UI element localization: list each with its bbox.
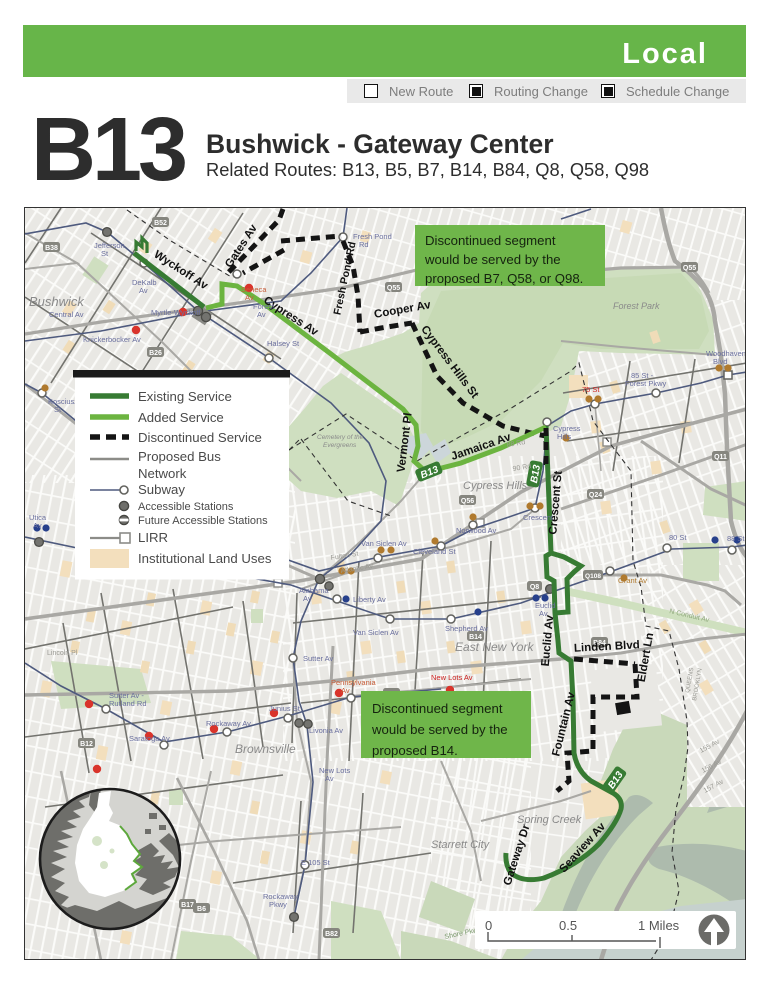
svg-text:proposed B14.: proposed B14.	[372, 743, 458, 758]
svg-text:0: 0	[485, 918, 492, 933]
svg-text:Lincoln Pl: Lincoln Pl	[47, 650, 78, 657]
svg-text:75 St: 75 St	[582, 385, 600, 394]
svg-text:Added Service: Added Service	[138, 410, 224, 425]
svg-text:Saratoga Av: Saratoga Av	[129, 734, 170, 743]
svg-text:Knickerbocker Av: Knickerbocker Av	[83, 335, 141, 344]
svg-text:Central Av: Central Av	[49, 310, 84, 319]
svg-text:St: St	[101, 249, 109, 258]
svg-text:Institutional Land Uses: Institutional Land Uses	[138, 551, 272, 566]
svg-text:Starrett City: Starrett City	[431, 839, 491, 851]
svg-text:Brownsville: Brownsville	[235, 742, 296, 756]
svg-text:Forest Pkwy: Forest Pkwy	[625, 379, 667, 388]
svg-text:would be served by the: would be served by the	[371, 722, 508, 737]
svg-text:Proposed Bus: Proposed Bus	[138, 449, 221, 464]
svg-text:Spring Creek: Spring Creek	[517, 814, 582, 826]
svg-text:Shepherd Av: Shepherd Av	[445, 624, 488, 633]
svg-text:Q55: Q55	[683, 265, 696, 272]
svg-text:Av: Av	[341, 686, 350, 695]
svg-text:Myrtle-Wyckoff: Myrtle-Wyckoff	[151, 308, 201, 317]
svg-text:Rockaway Av: Rockaway Av	[206, 719, 251, 728]
svg-text:proposed B7, Q58, or Q98.: proposed B7, Q58, or Q98.	[425, 271, 583, 286]
svg-text:Accessible Stations: Accessible Stations	[138, 501, 234, 513]
svg-text:Rd: Rd	[359, 240, 369, 249]
svg-text:Q8: Q8	[530, 584, 539, 591]
svg-text:Blvd: Blvd	[713, 357, 728, 366]
svg-text:New Lots Av: New Lots Av	[431, 673, 473, 682]
svg-text:0.5: 0.5	[559, 918, 577, 933]
svg-text:Av: Av	[139, 286, 148, 295]
svg-text:1 Miles: 1 Miles	[638, 918, 680, 933]
svg-text:B17: B17	[181, 902, 194, 909]
svg-text:B26: B26	[149, 350, 162, 357]
svg-text:Crescent: Crescent	[523, 513, 554, 522]
svg-text:Q11: Q11	[714, 454, 727, 461]
svg-text:Av: Av	[245, 293, 254, 302]
svg-text:E 105 St: E 105 St	[301, 858, 331, 867]
svg-text:Evergreens: Evergreens	[323, 442, 357, 449]
svg-text:Pkwy: Pkwy	[269, 900, 287, 909]
svg-text:Forest Park: Forest Park	[613, 301, 660, 311]
svg-text:Q108: Q108	[585, 573, 601, 580]
svg-text:Bushwick: Bushwick	[29, 294, 85, 309]
svg-text:80 St: 80 St	[669, 533, 687, 542]
svg-text:Liberty Av: Liberty Av	[353, 595, 386, 604]
svg-text:Av: Av	[257, 310, 266, 319]
svg-text:B52: B52	[154, 220, 167, 227]
svg-text:Q24: Q24	[589, 492, 602, 499]
svg-text:Q56: Q56	[461, 498, 474, 505]
svg-text:would be served by the: would be served by the	[424, 252, 561, 267]
svg-text:B38: B38	[45, 245, 58, 252]
svg-text:B6: B6	[197, 906, 206, 913]
svg-text:Discontinued Service: Discontinued Service	[138, 430, 262, 445]
svg-text:Grant Av: Grant Av	[618, 576, 647, 585]
svg-text:Cemetery of the: Cemetery of the	[317, 434, 364, 441]
svg-text:B12: B12	[80, 741, 93, 748]
svg-text:Q55: Q55	[387, 285, 400, 292]
svg-text:Pennsylvania: Pennsylvania	[331, 678, 376, 687]
svg-text:Existing Service: Existing Service	[138, 389, 232, 404]
svg-text:Subway: Subway	[138, 482, 185, 497]
svg-text:Cleveland St: Cleveland St	[413, 547, 456, 556]
svg-text:Halsey St: Halsey St	[267, 339, 300, 348]
svg-text:Norwood Av: Norwood Av	[456, 526, 497, 535]
svg-text:Av: Av	[539, 609, 548, 618]
svg-text:Av: Av	[325, 774, 334, 783]
svg-text:New Lots: New Lots	[319, 766, 351, 775]
svg-text:Hills: Hills	[557, 432, 571, 441]
svg-text:B82: B82	[325, 931, 338, 938]
svg-text:Future Accessible Stations: Future Accessible Stations	[138, 515, 268, 527]
svg-text:Jefferson: Jefferson	[94, 241, 125, 250]
svg-text:Livonia Av: Livonia Av	[309, 726, 343, 735]
svg-text:88 St: 88 St	[727, 534, 745, 543]
svg-text:Av: Av	[303, 594, 312, 603]
svg-text:East New York: East New York	[455, 640, 534, 654]
svg-text:Network: Network	[138, 466, 187, 481]
svg-text:Van Siclen Av: Van Siclen Av	[361, 539, 407, 548]
svg-text:LIRR: LIRR	[138, 530, 168, 545]
svg-text:Av: Av	[33, 521, 42, 530]
svg-text:Discontinued segment: Discontinued segment	[425, 233, 556, 248]
svg-text:Rutland Rd: Rutland Rd	[109, 699, 147, 708]
svg-text:Junius St: Junius St	[269, 704, 301, 713]
svg-text:St: St	[54, 405, 62, 414]
svg-text:Van Siclen Av: Van Siclen Av	[353, 628, 399, 637]
svg-text:Cypress Hills: Cypress Hills	[463, 480, 528, 492]
svg-text:Sutter Av: Sutter Av	[303, 654, 334, 663]
svg-text:Discontinued segment: Discontinued segment	[372, 701, 503, 716]
